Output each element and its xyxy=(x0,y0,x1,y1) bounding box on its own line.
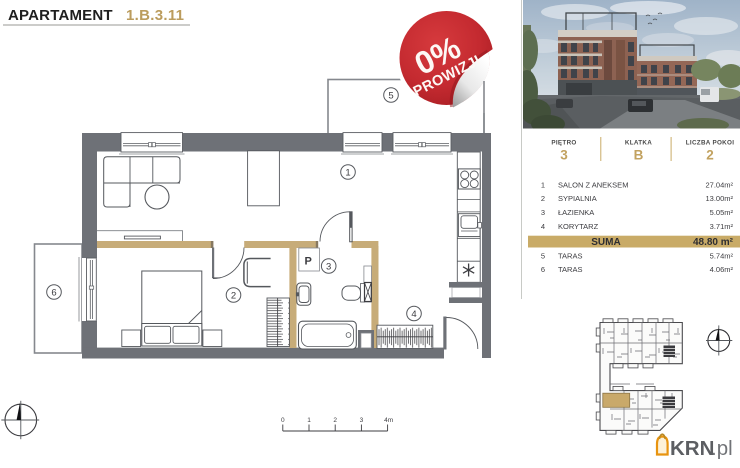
svg-text:PIĘTRO: PIĘTRO xyxy=(551,140,576,147)
svg-text:P: P xyxy=(305,256,312,268)
svg-text:2: 2 xyxy=(333,417,337,424)
svg-text:LICZBA POKOI: LICZBA POKOI xyxy=(686,140,735,147)
svg-text:3: 3 xyxy=(541,208,545,217)
svg-text:3: 3 xyxy=(560,148,568,163)
svg-text:5: 5 xyxy=(541,252,545,261)
svg-text:KLATKA: KLATKA xyxy=(625,140,652,147)
svg-text:SALON Z ANEKSEM: SALON Z ANEKSEM xyxy=(558,181,628,190)
svg-text:27.04m²: 27.04m² xyxy=(705,181,733,190)
svg-text:TARAS: TARAS xyxy=(558,252,582,261)
svg-text:1: 1 xyxy=(345,168,350,179)
svg-text:TARAS: TARAS xyxy=(558,265,582,274)
svg-text:2: 2 xyxy=(706,148,714,163)
svg-text:1: 1 xyxy=(541,181,545,190)
svg-text:SUMA: SUMA xyxy=(591,237,620,248)
svg-text:KRN: KRN xyxy=(670,437,714,460)
svg-text:ŁAZIENKA: ŁAZIENKA xyxy=(558,208,594,217)
svg-text:SYPIALNIA: SYPIALNIA xyxy=(558,194,597,203)
svg-text:.pl: .pl xyxy=(711,437,733,460)
svg-text:3.71m²: 3.71m² xyxy=(710,222,734,231)
svg-text:3: 3 xyxy=(326,262,331,273)
svg-text:6: 6 xyxy=(51,288,56,299)
svg-text:4: 4 xyxy=(411,309,416,320)
svg-text:48.80 m²: 48.80 m² xyxy=(693,237,734,248)
svg-text:2: 2 xyxy=(541,194,545,203)
svg-text:1.B.3.11: 1.B.3.11 xyxy=(126,7,184,24)
svg-text:4m: 4m xyxy=(384,417,393,424)
svg-text:13.00m²: 13.00m² xyxy=(705,194,733,203)
svg-text:APARTAMENT: APARTAMENT xyxy=(8,7,113,24)
svg-text:KORYTARZ: KORYTARZ xyxy=(558,222,599,231)
svg-text:4.06m²: 4.06m² xyxy=(710,265,734,274)
svg-text:3: 3 xyxy=(360,417,364,424)
svg-text:6: 6 xyxy=(541,265,545,274)
svg-text:5.74m²: 5.74m² xyxy=(710,252,734,261)
svg-text:5: 5 xyxy=(388,91,393,102)
svg-text:B: B xyxy=(634,148,644,163)
svg-text:4: 4 xyxy=(541,222,545,231)
svg-text:2: 2 xyxy=(231,291,236,302)
svg-text:1: 1 xyxy=(307,417,311,424)
svg-text:5.05m²: 5.05m² xyxy=(710,208,734,217)
svg-text:0: 0 xyxy=(281,417,285,424)
